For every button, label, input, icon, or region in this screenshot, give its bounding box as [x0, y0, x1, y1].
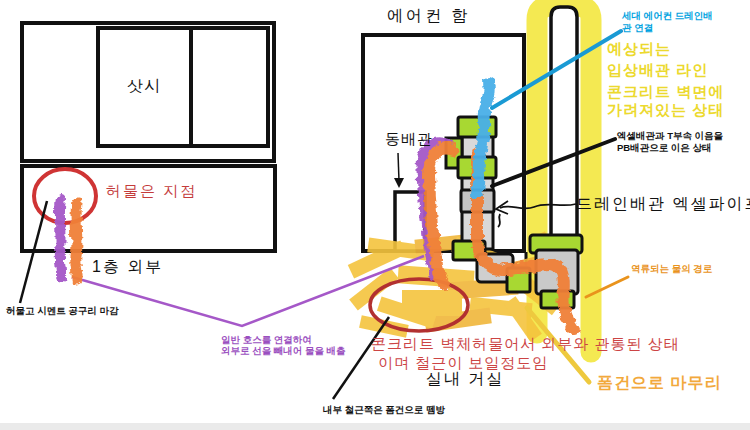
first-floor-label: 1층 외부 — [92, 259, 163, 276]
foam-finish-label: 폼건으로 마무리 — [597, 375, 721, 392]
riser-note-line3: 콘크리트 벽면에 — [607, 84, 724, 100]
pb-note-line1: 엑셀배관과 T부속 이음을 — [617, 131, 723, 141]
demolished-point-label: 허물은 지점 — [106, 183, 197, 199]
living-room-label: 실내 거실 — [426, 371, 504, 388]
riser-note-line2: 입상배관 라인 — [607, 62, 708, 78]
bottom-edge-strip — [0, 423, 750, 430]
sash-window-rect — [98, 28, 268, 146]
hose-note-line1: 일반 호스를 연결하여 — [221, 335, 312, 345]
sash-label: 삿시 — [127, 78, 161, 95]
riser-note-line4: 가려져있는 상태 — [607, 102, 724, 118]
left-orange-scribble — [76, 203, 77, 279]
pb-note-line2: PB배관으로 이은 상태 — [617, 143, 711, 153]
pipe-fitting-top — [458, 117, 496, 137]
cement-note-label: 허물고 시멘트 공구리 마감 — [6, 306, 118, 316]
riser-note-line1: 예상되는 — [607, 41, 671, 57]
unit-drain-note-line2: 관 연결 — [622, 23, 653, 33]
drain-pipe-label: 드레인배관 엑셀파이프 — [576, 196, 750, 213]
rebar-note-label: 내부 철근쪽은 폼건으로 뗌방 — [323, 405, 445, 415]
hose-note-line2: 외부로 선을 빼내어 물을 배출 — [221, 346, 346, 356]
left-purple-scribble — [60, 199, 61, 277]
aircon-box-label: 에어컨 함 — [387, 8, 470, 25]
concrete-note-line2: 이며 철근이 보일정도임 — [378, 355, 548, 371]
backflow-label: 역류되는 물의 경로 — [631, 264, 712, 274]
concrete-note-line1: 콘크리트 벽체허물어서 외부와 관통된 상태 — [371, 336, 680, 352]
unit-drain-note-line1: 세대 에어컨 드레인배 — [622, 11, 713, 21]
copper-pipe-label: 동배관 — [385, 131, 433, 147]
plumbing-diagram: 에어컨 함 삿시 동배관 허물은 지점 1층 외부 허물고 시멘트 공구리 마감… — [0, 0, 750, 430]
